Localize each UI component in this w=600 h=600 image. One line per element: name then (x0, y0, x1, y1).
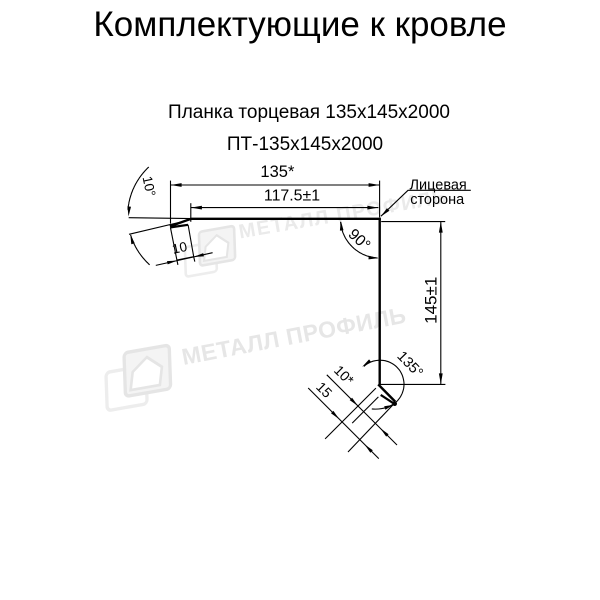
svg-text:135°: 135° (394, 348, 426, 381)
svg-text:135*: 135* (260, 163, 295, 181)
svg-text:сторона: сторона (410, 192, 465, 208)
svg-text:117.5±1: 117.5±1 (264, 188, 320, 205)
svg-text:Лицевая: Лицевая (410, 177, 467, 193)
svg-text:15: 15 (313, 379, 335, 401)
svg-text:10°: 10° (140, 175, 159, 198)
svg-text:90°: 90° (345, 226, 374, 254)
svg-text:МЕТАЛЛ ПРОФИЛЬ: МЕТАЛЛ ПРОФИЛЬ (180, 302, 409, 370)
svg-text:10*: 10* (331, 362, 358, 389)
svg-text:145±1: 145±1 (422, 277, 441, 324)
svg-text:10: 10 (171, 239, 189, 257)
